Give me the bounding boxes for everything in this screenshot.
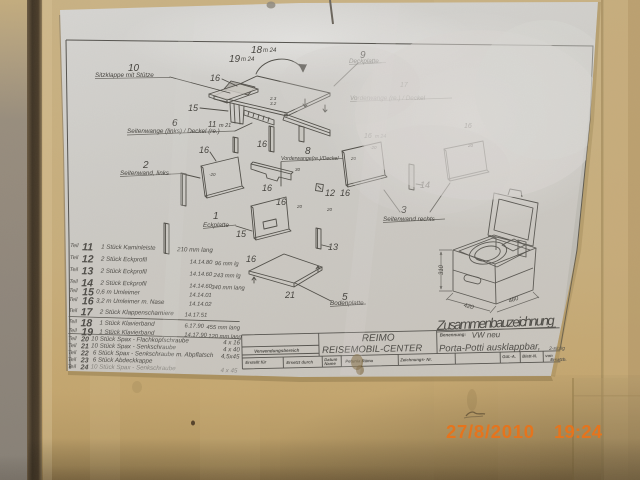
svg-text:27/8/2010: 27/8/2010	[446, 421, 534, 442]
svg-text:19:24: 19:24	[554, 421, 603, 442]
